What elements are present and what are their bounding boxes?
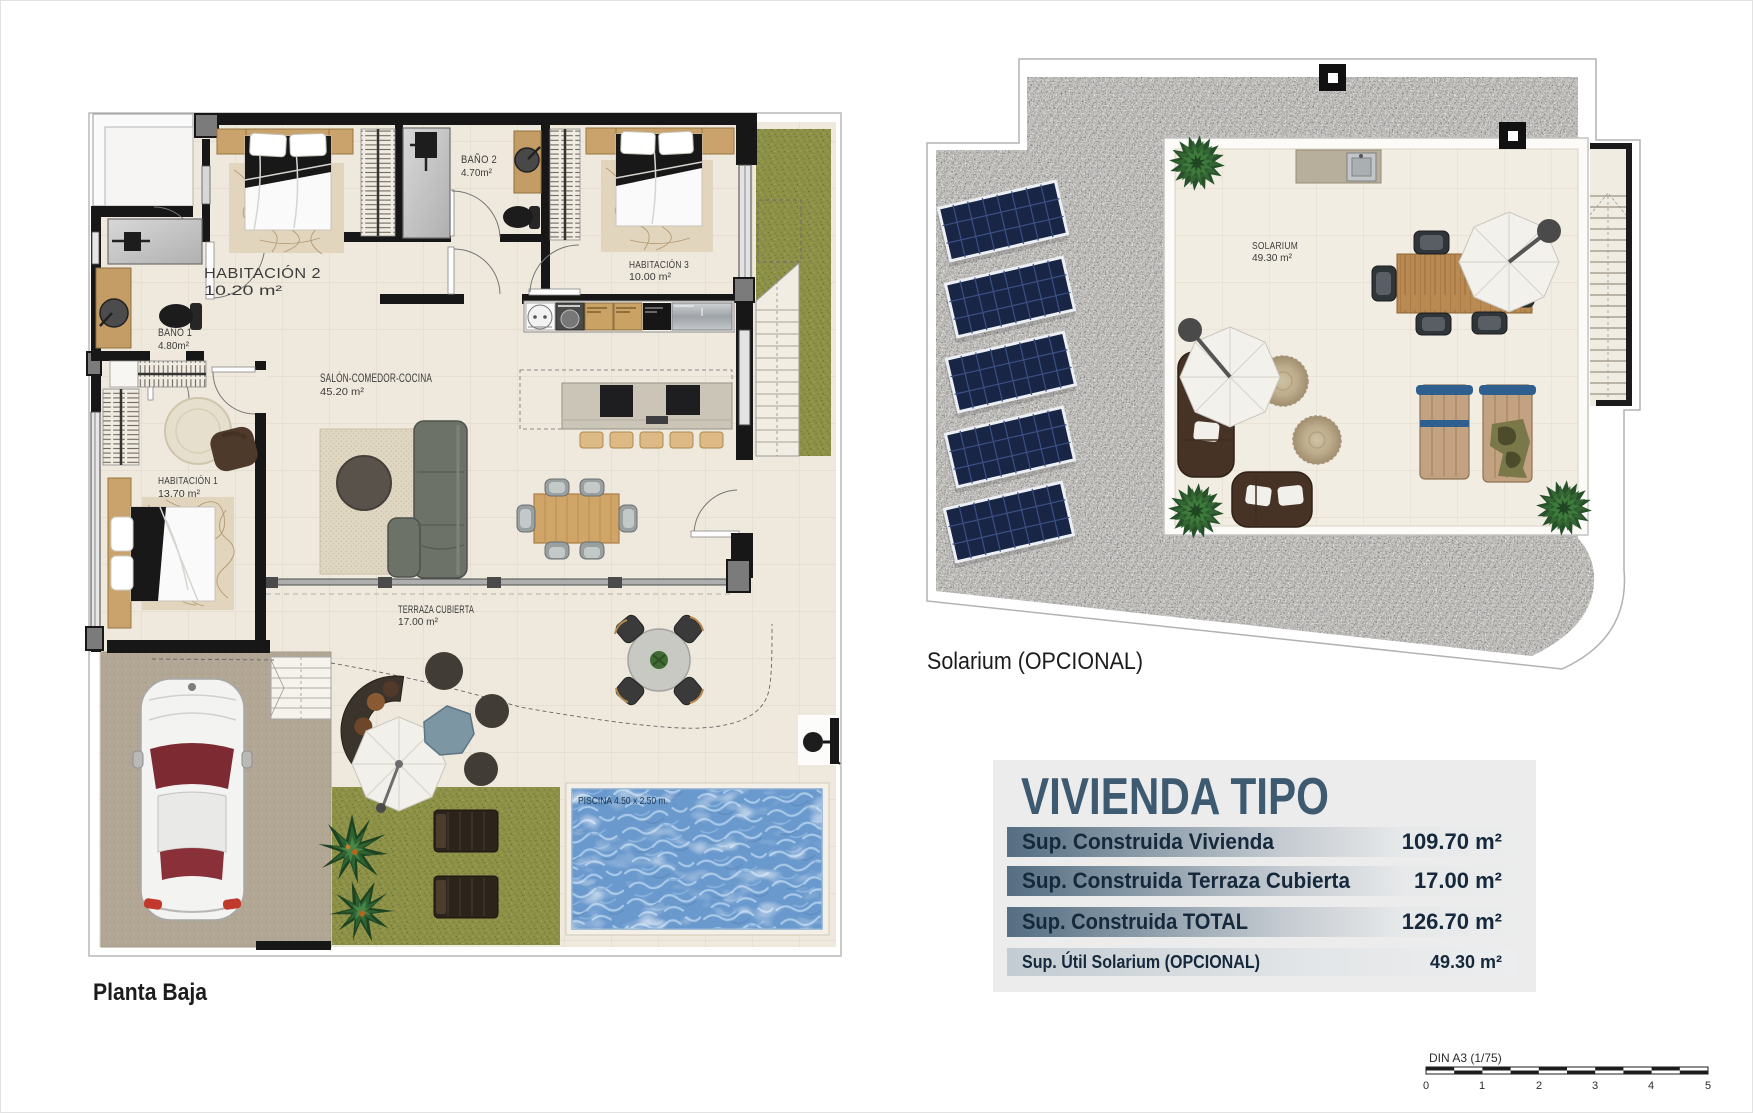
svg-text:VIVIENDA TIPO: VIVIENDA TIPO	[1021, 768, 1329, 826]
svg-text:126.70 m²: 126.70 m²	[1402, 909, 1502, 934]
svg-text:HABITACIÓN 2: HABITACIÓN 2	[204, 265, 321, 282]
svg-text:HABITACIÓN 1: HABITACIÓN 1	[158, 474, 218, 487]
svg-text:Sup. Construida Terraza Cubier: Sup. Construida Terraza Cubierta	[1022, 868, 1351, 893]
svg-text:4.70m²: 4.70m²	[461, 167, 492, 179]
svg-text:5: 5	[1705, 1080, 1711, 1092]
svg-text:SALÓN-COMEDOR-COCINA: SALÓN-COMEDOR-COCINA	[320, 372, 432, 385]
svg-text:109.70 m²: 109.70 m²	[1402, 829, 1502, 854]
svg-text:49.30 m²: 49.30 m²	[1252, 253, 1293, 264]
svg-text:10.20 m²: 10.20 m²	[204, 283, 283, 298]
svg-text:4.80m²: 4.80m²	[158, 340, 189, 352]
svg-text:Sup. Construida TOTAL: Sup. Construida TOTAL	[1022, 909, 1248, 934]
svg-text:Solarium (OPCIONAL): Solarium (OPCIONAL)	[927, 648, 1143, 675]
svg-text:2: 2	[1536, 1080, 1542, 1092]
svg-text:10.00 m²: 10.00 m²	[629, 272, 672, 283]
svg-text:4: 4	[1648, 1080, 1654, 1092]
svg-text:SOLARIUM: SOLARIUM	[1252, 240, 1298, 252]
svg-text:17.00 m²: 17.00 m²	[398, 617, 439, 628]
svg-text:17.00 m²: 17.00 m²	[1414, 868, 1502, 893]
svg-text:13.70 m²: 13.70 m²	[158, 489, 201, 500]
svg-text:0: 0	[1423, 1080, 1429, 1092]
svg-text:Planta Baja: Planta Baja	[93, 979, 208, 1006]
svg-text:PISCINA 4.50 x 2.50 m.: PISCINA 4.50 x 2.50 m.	[578, 795, 668, 807]
svg-text:BAÑO 1: BAÑO 1	[158, 326, 192, 339]
svg-text:Sup. Construida Vivienda: Sup. Construida Vivienda	[1022, 829, 1275, 854]
svg-text:3: 3	[1592, 1080, 1598, 1092]
svg-text:BAÑO 2: BAÑO 2	[461, 153, 497, 166]
svg-text:Sup. Útil Solarium (OPCIONAL): Sup. Útil Solarium (OPCIONAL)	[1022, 951, 1260, 972]
svg-text:45.20 m²: 45.20 m²	[320, 386, 365, 398]
svg-text:1: 1	[1479, 1080, 1485, 1092]
svg-text:TERRAZA CUBIERTA: TERRAZA CUBIERTA	[398, 604, 474, 616]
svg-text:HABITACIÓN 3: HABITACIÓN 3	[629, 258, 689, 271]
svg-text:49.30 m²: 49.30 m²	[1430, 952, 1502, 972]
svg-text:DIN A3 (1/75): DIN A3 (1/75)	[1429, 1051, 1502, 1065]
